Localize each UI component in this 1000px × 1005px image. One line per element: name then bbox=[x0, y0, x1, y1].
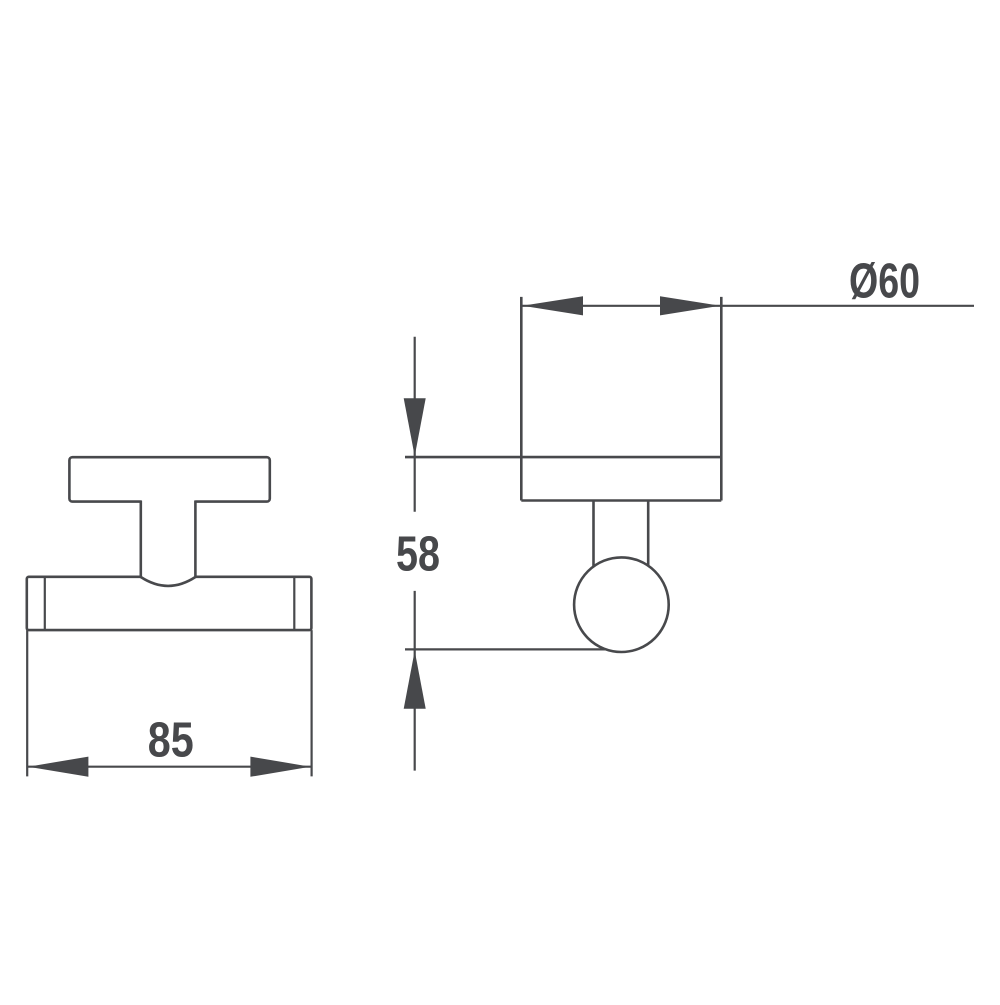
svg-text:Ø60: Ø60 bbox=[849, 255, 920, 309]
svg-text:85: 85 bbox=[148, 713, 194, 767]
svg-text:58: 58 bbox=[396, 528, 440, 582]
